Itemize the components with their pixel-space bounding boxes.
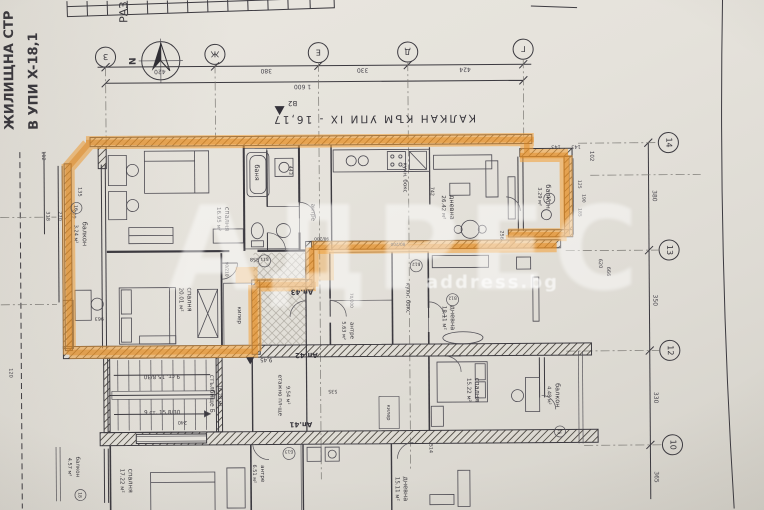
furniture — [74, 148, 553, 510]
room-area: 3.24 м² — [73, 225, 79, 244]
room-label: кухн. бокс — [404, 283, 410, 313]
side-title-1: ЖИЛИЩНА СТР — [2, 10, 18, 130]
room-area: 4.48 м² — [546, 386, 552, 405]
grid-bubble-label: Г — [521, 44, 526, 53]
room-label: спалня — [473, 378, 481, 402]
room-label: спалня — [223, 207, 231, 231]
dim-label: 190 — [580, 194, 586, 203]
dim-label: 535 — [328, 388, 337, 394]
stair-flight-label: 9 ст. 15,8/30 — [143, 373, 180, 379]
dim-label: 742 — [429, 187, 435, 196]
dim-label: 125 — [576, 180, 582, 189]
stair-name-label: стълбище Б — [208, 375, 216, 413]
side-title-3: РАЗ — [117, 2, 130, 23]
room-label: антре — [259, 465, 265, 483]
north-arrow-icon: N — [129, 39, 183, 84]
room-label: кухн. бокс — [401, 162, 407, 192]
landing-area-label: 9.54 м² — [285, 386, 291, 405]
room-area: 18.11 м² — [441, 306, 448, 330]
room-area: 20.01 м² — [177, 288, 184, 312]
room-label: килер — [236, 307, 242, 325]
door-tag-label: 15 — [556, 429, 562, 435]
room-label: антре — [348, 322, 354, 340]
grid-bubble-label: 10 — [668, 440, 677, 450]
grid-bubble-label: Е — [316, 48, 321, 57]
dim-label: 270 — [56, 211, 62, 221]
dim-label: 135 — [76, 187, 82, 197]
room-area: 3.29 м² — [536, 187, 542, 206]
door-tag-label: 18 — [76, 492, 82, 498]
dim-label: 70/200 — [349, 293, 354, 308]
title-table-fragment — [66, 0, 334, 17]
grid-bubble-label: З — [103, 52, 108, 61]
apartment-label: Ап.42 — [295, 351, 318, 360]
room-label: спалня — [185, 287, 193, 311]
dim-label: 424 — [459, 66, 471, 73]
dim-label: 80/200 — [390, 242, 405, 247]
stair-flight-label: 9 ст. 15,8/30 — [144, 410, 181, 416]
apartment-label: Ап.41 — [289, 420, 312, 429]
room-area: 4.57 м² — [66, 458, 72, 477]
dim-label: 620 — [597, 259, 603, 269]
dim-label: 380 — [651, 190, 658, 202]
dim-label: 330 — [357, 66, 369, 73]
grid-bubble-label: Ж — [210, 49, 219, 58]
dim-label: 185 — [576, 208, 582, 217]
grid-bubble-label: Д — [405, 47, 411, 56]
dim-label: 666 — [605, 267, 611, 277]
dim-label: 358 — [250, 256, 259, 262]
dim-label: 963 — [95, 315, 104, 321]
room-label: антре — [309, 204, 315, 222]
dim-label: 90/200 — [314, 236, 329, 241]
highlight-apartment-43 — [68, 139, 569, 354]
party-wall-label: КАЛКАН КЪМ УПИ IX - 16,17 — [272, 112, 476, 125]
staircase — [108, 358, 219, 433]
room-label: дневна — [402, 476, 410, 501]
door-tag-label: Б12 — [412, 262, 421, 267]
room-area: 15.22 м² — [465, 378, 472, 402]
door-tag-label: Б13 — [285, 449, 294, 454]
dim-label: 420 — [154, 68, 166, 75]
dim-label: 112 — [40, 151, 46, 161]
floor-plan-photo: ЖИЛИЩНА СТР В УПИ X-18,1 РАЗ N З Ж Е Д Г… — [0, 0, 764, 510]
floor-plan-drawing: ЖИЛИЩНА СТР В УПИ X-18,1 РАЗ N З Ж Е Д Г… — [0, 0, 764, 510]
level-label: 9,45 — [260, 356, 273, 362]
dim-label: 90/210 — [224, 262, 229, 277]
room-label-kiler: килер — [385, 405, 391, 421]
door-tag-label: 16 — [72, 205, 78, 211]
room-label: спалня — [126, 469, 134, 493]
dim-label: 120 — [7, 368, 13, 378]
room-label: балкон — [554, 383, 562, 407]
grid-bubble-label: 12 — [666, 345, 675, 355]
benchmark-marker: B2 — [274, 99, 297, 115]
room-label: баня — [253, 164, 261, 180]
room-label: дневна — [448, 195, 456, 220]
dim-label: 318 — [44, 211, 50, 221]
room-area: 5.63 м² — [340, 321, 346, 340]
room-label: балкон — [81, 222, 89, 246]
dim-label: 256 — [498, 230, 504, 239]
dim-label: 143 — [571, 143, 581, 149]
dim-label: 443 — [287, 166, 293, 175]
dim-label: 514 — [428, 444, 434, 453]
dim-label: 102 — [588, 151, 594, 162]
grid-bubble-label: 14 — [664, 137, 673, 147]
door-tag-label: 17 — [545, 196, 551, 202]
room-area: 17.22 м² — [118, 469, 125, 493]
room-label: дневна — [449, 305, 457, 330]
side-title-2: В УПИ X-18,1 — [26, 32, 42, 130]
room-label: балкон — [74, 457, 80, 478]
apartment-label: Ап.43 — [290, 288, 313, 297]
benchmark-label: B2 — [288, 99, 297, 108]
room-area: 26.42 м² — [440, 195, 447, 219]
walls-partition — [54, 143, 584, 510]
room-area: 16.95 м² — [215, 207, 222, 231]
room-area: 6.51 м² — [251, 464, 257, 483]
dim-label: 350 — [651, 295, 658, 307]
dim-label: 240 — [178, 419, 187, 425]
room-labels: спалня 16.95 м² спалня 20.01 м² дневна 2… — [64, 161, 562, 503]
room-area: 15.11 м² — [394, 477, 401, 501]
door-tag-label: В12 — [448, 296, 457, 301]
dim-total-label: 1 600 — [294, 83, 311, 90]
dim-label: 365 — [653, 471, 660, 483]
stair-area-label: 16.28 м² — [216, 385, 222, 407]
dim-label: 330 — [652, 392, 659, 404]
grid-bubble-label: 13 — [665, 245, 674, 255]
north-letter: N — [129, 57, 139, 65]
door-tag-label: Б11 — [260, 257, 269, 262]
dim-label: 380 — [260, 67, 272, 74]
landing-name-label: етажно пл-ще — [276, 375, 282, 417]
